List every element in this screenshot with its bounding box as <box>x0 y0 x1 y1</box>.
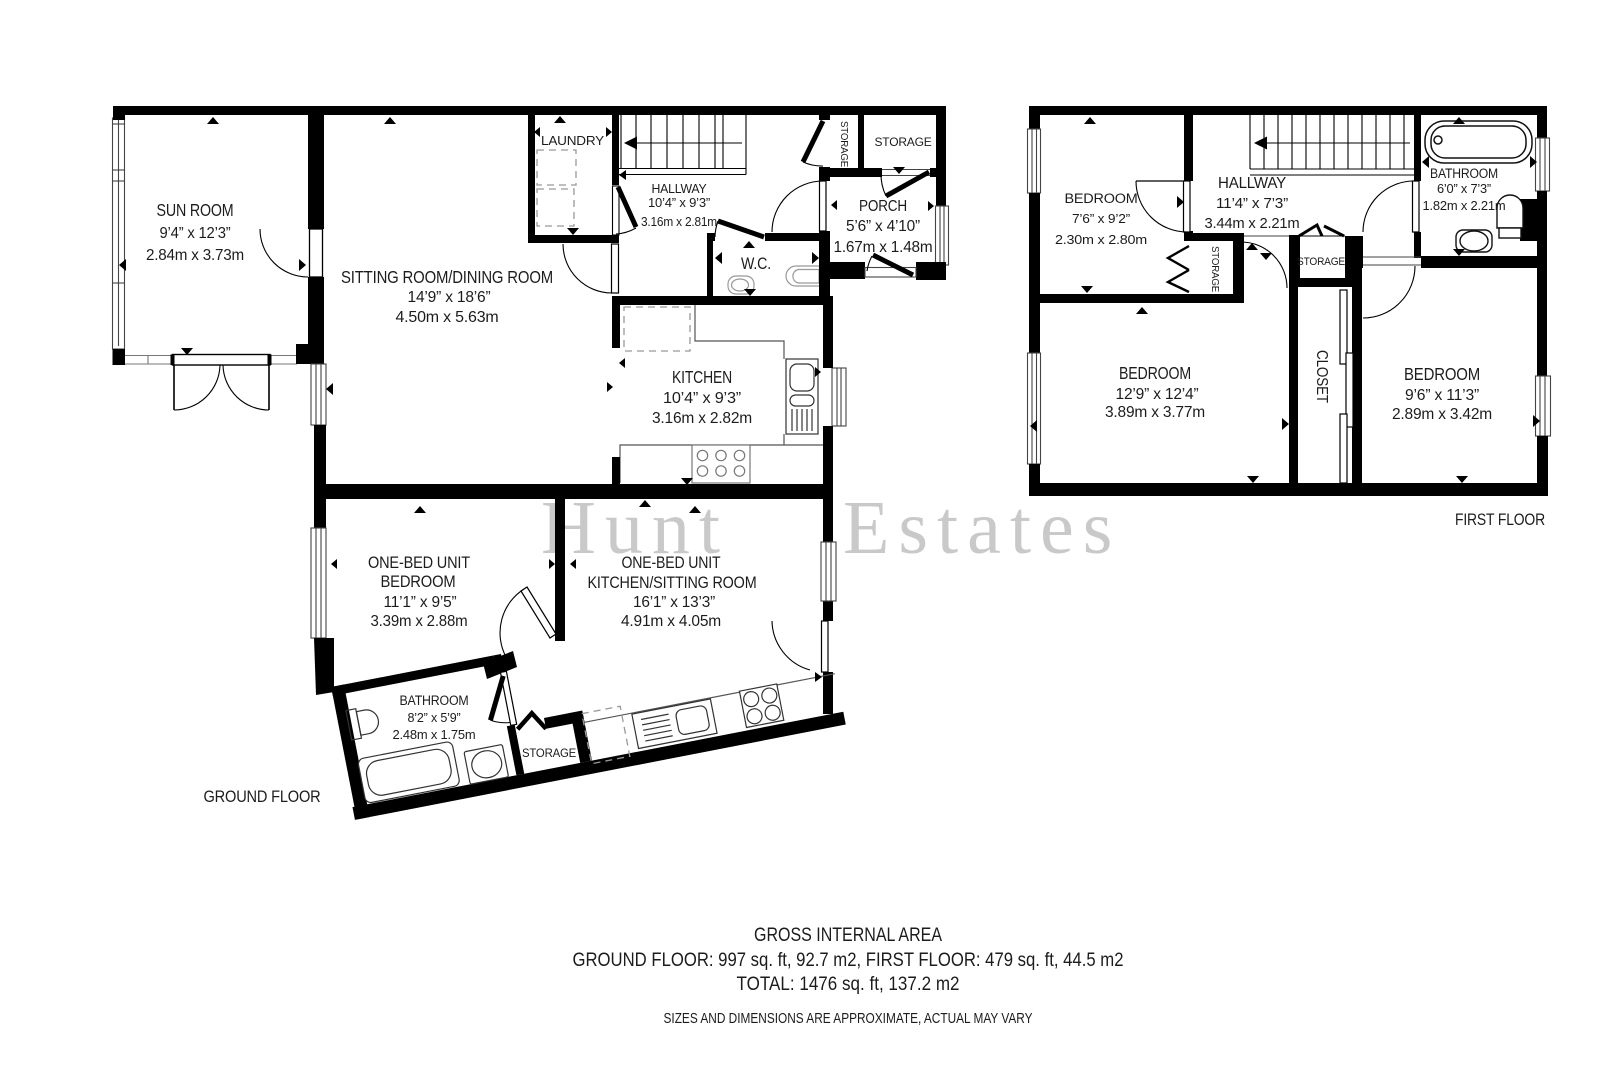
svg-text:GROUND FLOOR: GROUND FLOOR <box>204 788 321 806</box>
svg-text:TOTAL: 1476 sq. ft, 137.2 m2: TOTAL: 1476 sq. ft, 137.2 m2 <box>737 974 960 995</box>
svg-text:1.82m x 2.21m: 1.82m x 2.21m <box>1423 199 1506 213</box>
svg-text:STORAGE: STORAGE <box>522 746 576 760</box>
svg-text:6’0” x 7’3”: 6’0” x 7’3” <box>1437 182 1491 196</box>
svg-text:BEDROOM: BEDROOM <box>1065 191 1138 206</box>
svg-text:2.89m x 3.42m: 2.89m x 3.42m <box>1392 406 1492 423</box>
svg-text:4.50m x 5.63m: 4.50m x 5.63m <box>396 309 499 326</box>
svg-text:BEDROOM: BEDROOM <box>1404 364 1480 384</box>
svg-text:3.89m x 3.77m: 3.89m x 3.77m <box>1105 404 1205 421</box>
svg-text:SIZES AND DIMENSIONS ARE APPRO: SIZES AND DIMENSIONS ARE APPROXIMATE, AC… <box>664 1011 1033 1027</box>
svg-text:SITTING ROOM/DINING ROOM: SITTING ROOM/DINING ROOM <box>341 267 553 287</box>
svg-text:KITCHEN/SITTING ROOM: KITCHEN/SITTING ROOM <box>588 573 757 592</box>
svg-text:STORAGE: STORAGE <box>1209 246 1221 292</box>
svg-text:2.84m x 3.73m: 2.84m x 3.73m <box>146 247 244 264</box>
svg-text:BATHROOM: BATHROOM <box>400 693 469 708</box>
svg-text:3.39m x 2.88m: 3.39m x 2.88m <box>371 613 468 630</box>
svg-text:11’1” x 9’5”: 11’1” x 9’5” <box>384 594 457 611</box>
svg-text:SUN ROOM: SUN ROOM <box>157 200 234 220</box>
svg-text:2.30m x 2.80m: 2.30m x 2.80m <box>1055 232 1147 247</box>
svg-text:14’9” x 18’6”: 14’9” x 18’6” <box>408 289 491 306</box>
svg-text:3.16m x 2.82m: 3.16m x 2.82m <box>652 410 752 427</box>
svg-text:2.48m x 1.75m: 2.48m x 1.75m <box>393 727 476 742</box>
svg-text:PORCH: PORCH <box>859 198 907 215</box>
svg-text:4.91m x 4.05m: 4.91m x 4.05m <box>621 613 721 630</box>
svg-text:LAUNDRY: LAUNDRY <box>541 134 605 148</box>
svg-text:CLOSET: CLOSET <box>1313 350 1330 403</box>
svg-text:ONE-BED UNIT: ONE-BED UNIT <box>622 553 721 572</box>
svg-text:3.16m x 2.81m: 3.16m x 2.81m <box>641 214 717 229</box>
svg-text:BATHROOM: BATHROOM <box>1430 166 1498 181</box>
svg-text:Estates: Estates <box>843 486 1121 570</box>
svg-text:HALLWAY: HALLWAY <box>652 182 708 196</box>
svg-text:GROSS INTERNAL AREA: GROSS INTERNAL AREA <box>754 925 942 946</box>
svg-text:3.44m x 2.21m: 3.44m x 2.21m <box>1205 216 1300 232</box>
svg-text:STORAGE: STORAGE <box>875 137 933 149</box>
svg-text:GROUND FLOOR: 997 sq. ft, 92.7: GROUND FLOOR: 997 sq. ft, 92.7 m2, FIRST… <box>573 950 1124 971</box>
svg-text:HALLWAY: HALLWAY <box>1218 175 1286 192</box>
svg-text:12’9” x 12’4”: 12’9” x 12’4” <box>1116 386 1199 403</box>
svg-text:STORAGE: STORAGE <box>838 121 850 167</box>
svg-text:BEDROOM: BEDROOM <box>381 572 456 591</box>
svg-text:11’4” x 7’3”: 11’4” x 7’3” <box>1216 196 1288 212</box>
svg-text:STORAGE: STORAGE <box>1297 256 1345 268</box>
svg-text:FIRST FLOOR: FIRST FLOOR <box>1455 511 1545 529</box>
svg-text:10’4” x 9’3”: 10’4” x 9’3” <box>663 390 741 407</box>
svg-text:1.67m x 1.48m: 1.67m x 1.48m <box>834 239 933 256</box>
svg-text:7’6” x 9’2”: 7’6” x 9’2” <box>1072 211 1130 226</box>
svg-text:KITCHEN: KITCHEN <box>672 367 732 387</box>
svg-text:5’6” x 4’10”: 5’6” x 4’10” <box>846 218 920 235</box>
svg-text:W.C.: W.C. <box>741 254 771 273</box>
svg-text:9’4” x 12’3”: 9’4” x 12’3” <box>160 225 231 242</box>
svg-text:10’4” x 9’3”: 10’4” x 9’3” <box>648 195 710 210</box>
svg-text:8’2” x 5’9”: 8’2” x 5’9” <box>408 710 461 725</box>
svg-text:BEDROOM: BEDROOM <box>1119 363 1191 383</box>
svg-text:9’6” x 11’3”: 9’6” x 11’3” <box>1405 387 1479 404</box>
svg-text:16’1” x 13’3”: 16’1” x 13’3” <box>633 594 715 611</box>
svg-text:ONE-BED UNIT: ONE-BED UNIT <box>368 553 470 572</box>
